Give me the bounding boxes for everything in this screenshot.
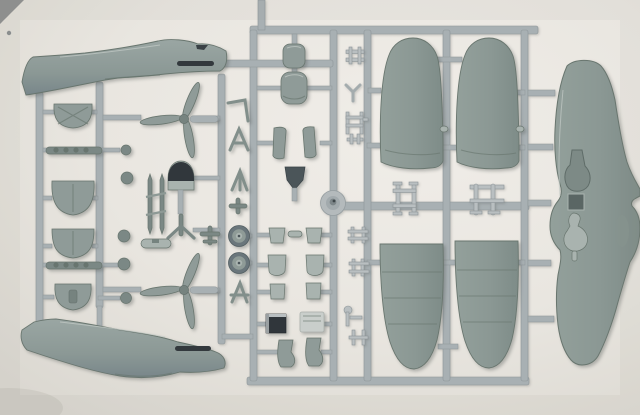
photo-stage bbox=[0, 0, 640, 415]
runner-v-mid-left bbox=[218, 74, 225, 344]
runner-v-wing1 bbox=[364, 30, 371, 381]
light-plate-part bbox=[300, 312, 324, 332]
runner-v-wing3 bbox=[521, 30, 528, 381]
cowl-flap-right bbox=[303, 127, 316, 158]
runner-v-wing2 bbox=[443, 30, 450, 381]
dust-speck bbox=[7, 31, 11, 35]
runner-bottom bbox=[247, 377, 529, 385]
gear-leg-fairing bbox=[306, 338, 323, 366]
gear-leg-fairing bbox=[278, 340, 295, 367]
runner-v-left bbox=[36, 92, 43, 332]
upper-wing-panel-right bbox=[456, 38, 524, 169]
runner-v-center-left bbox=[250, 30, 257, 381]
runner-top bbox=[250, 26, 538, 34]
cockpit-sill-slot bbox=[177, 61, 214, 66]
runner-mid bbox=[330, 202, 529, 210]
runner-v-left2 bbox=[96, 82, 103, 308]
fairing-bulge bbox=[615, 215, 629, 247]
runner-rung-top-center bbox=[221, 60, 333, 67]
radiator-block bbox=[266, 314, 286, 333]
runner-rung-bottom bbox=[222, 334, 253, 339]
cowl-ring-small bbox=[283, 44, 305, 68]
wheel bbox=[229, 226, 250, 247]
sprue-photo bbox=[0, 0, 640, 415]
cowl-flap-left bbox=[273, 127, 286, 159]
runner-gate-top bbox=[258, 0, 265, 30]
wheel bbox=[229, 253, 250, 274]
upper-wing-panel-left bbox=[380, 38, 448, 169]
cockpit-sill-slot bbox=[175, 346, 211, 351]
sprue-gate-boss bbox=[321, 191, 346, 216]
center-square-hole bbox=[568, 194, 584, 210]
